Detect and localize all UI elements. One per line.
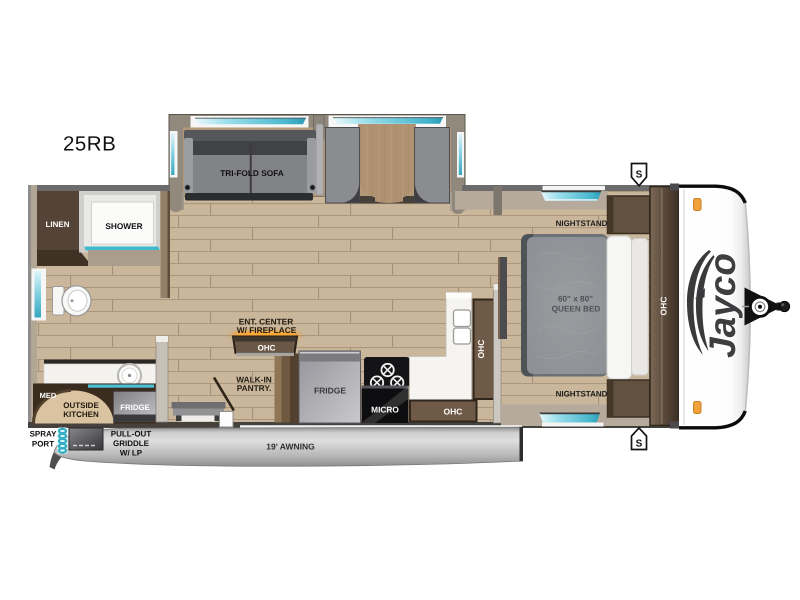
svg-text:NIGHTSTAND: NIGHTSTAND <box>556 390 608 399</box>
svg-text:W/ FIREPLACE: W/ FIREPLACE <box>237 325 297 335</box>
svg-text:FRIDGE: FRIDGE <box>314 386 346 396</box>
svg-text:GRIDDLE: GRIDDLE <box>113 439 150 448</box>
svg-text:S: S <box>636 439 643 450</box>
svg-text:NIGHTSTAND: NIGHTSTAND <box>556 219 608 228</box>
svg-text:OHC: OHC <box>476 340 486 359</box>
svg-text:PULL-OUT: PULL-OUT <box>111 430 152 439</box>
svg-text:25RB: 25RB <box>63 133 116 156</box>
svg-text:MED: MED <box>40 391 57 400</box>
svg-text:S: S <box>636 170 643 181</box>
svg-text:MICRO: MICRO <box>371 405 399 415</box>
svg-text:PORT: PORT <box>32 440 54 449</box>
svg-text:OUTSIDE: OUTSIDE <box>63 401 99 410</box>
svg-text:TRI-FOLD SOFA: TRI-FOLD SOFA <box>220 168 284 178</box>
svg-text:KITCHEN: KITCHEN <box>63 410 99 419</box>
svg-text:OHC: OHC <box>659 297 669 316</box>
svg-text:QUEEN BED: QUEEN BED <box>552 305 601 314</box>
svg-text:FRIDGE: FRIDGE <box>120 403 149 412</box>
svg-text:Jayco: Jayco <box>702 253 743 358</box>
svg-text:PANTRY.: PANTRY. <box>237 383 272 393</box>
svg-text:SHOWER: SHOWER <box>105 221 142 231</box>
svg-text:60" x 80": 60" x 80" <box>558 295 593 304</box>
svg-text:LINEN: LINEN <box>46 220 70 229</box>
svg-text:SPRAY: SPRAY <box>30 430 57 439</box>
svg-text:OHC: OHC <box>444 407 463 417</box>
svg-text:W/ LP: W/ LP <box>120 449 143 458</box>
svg-text:OHC: OHC <box>258 344 276 353</box>
svg-text:19' AWNING: 19' AWNING <box>266 442 315 452</box>
